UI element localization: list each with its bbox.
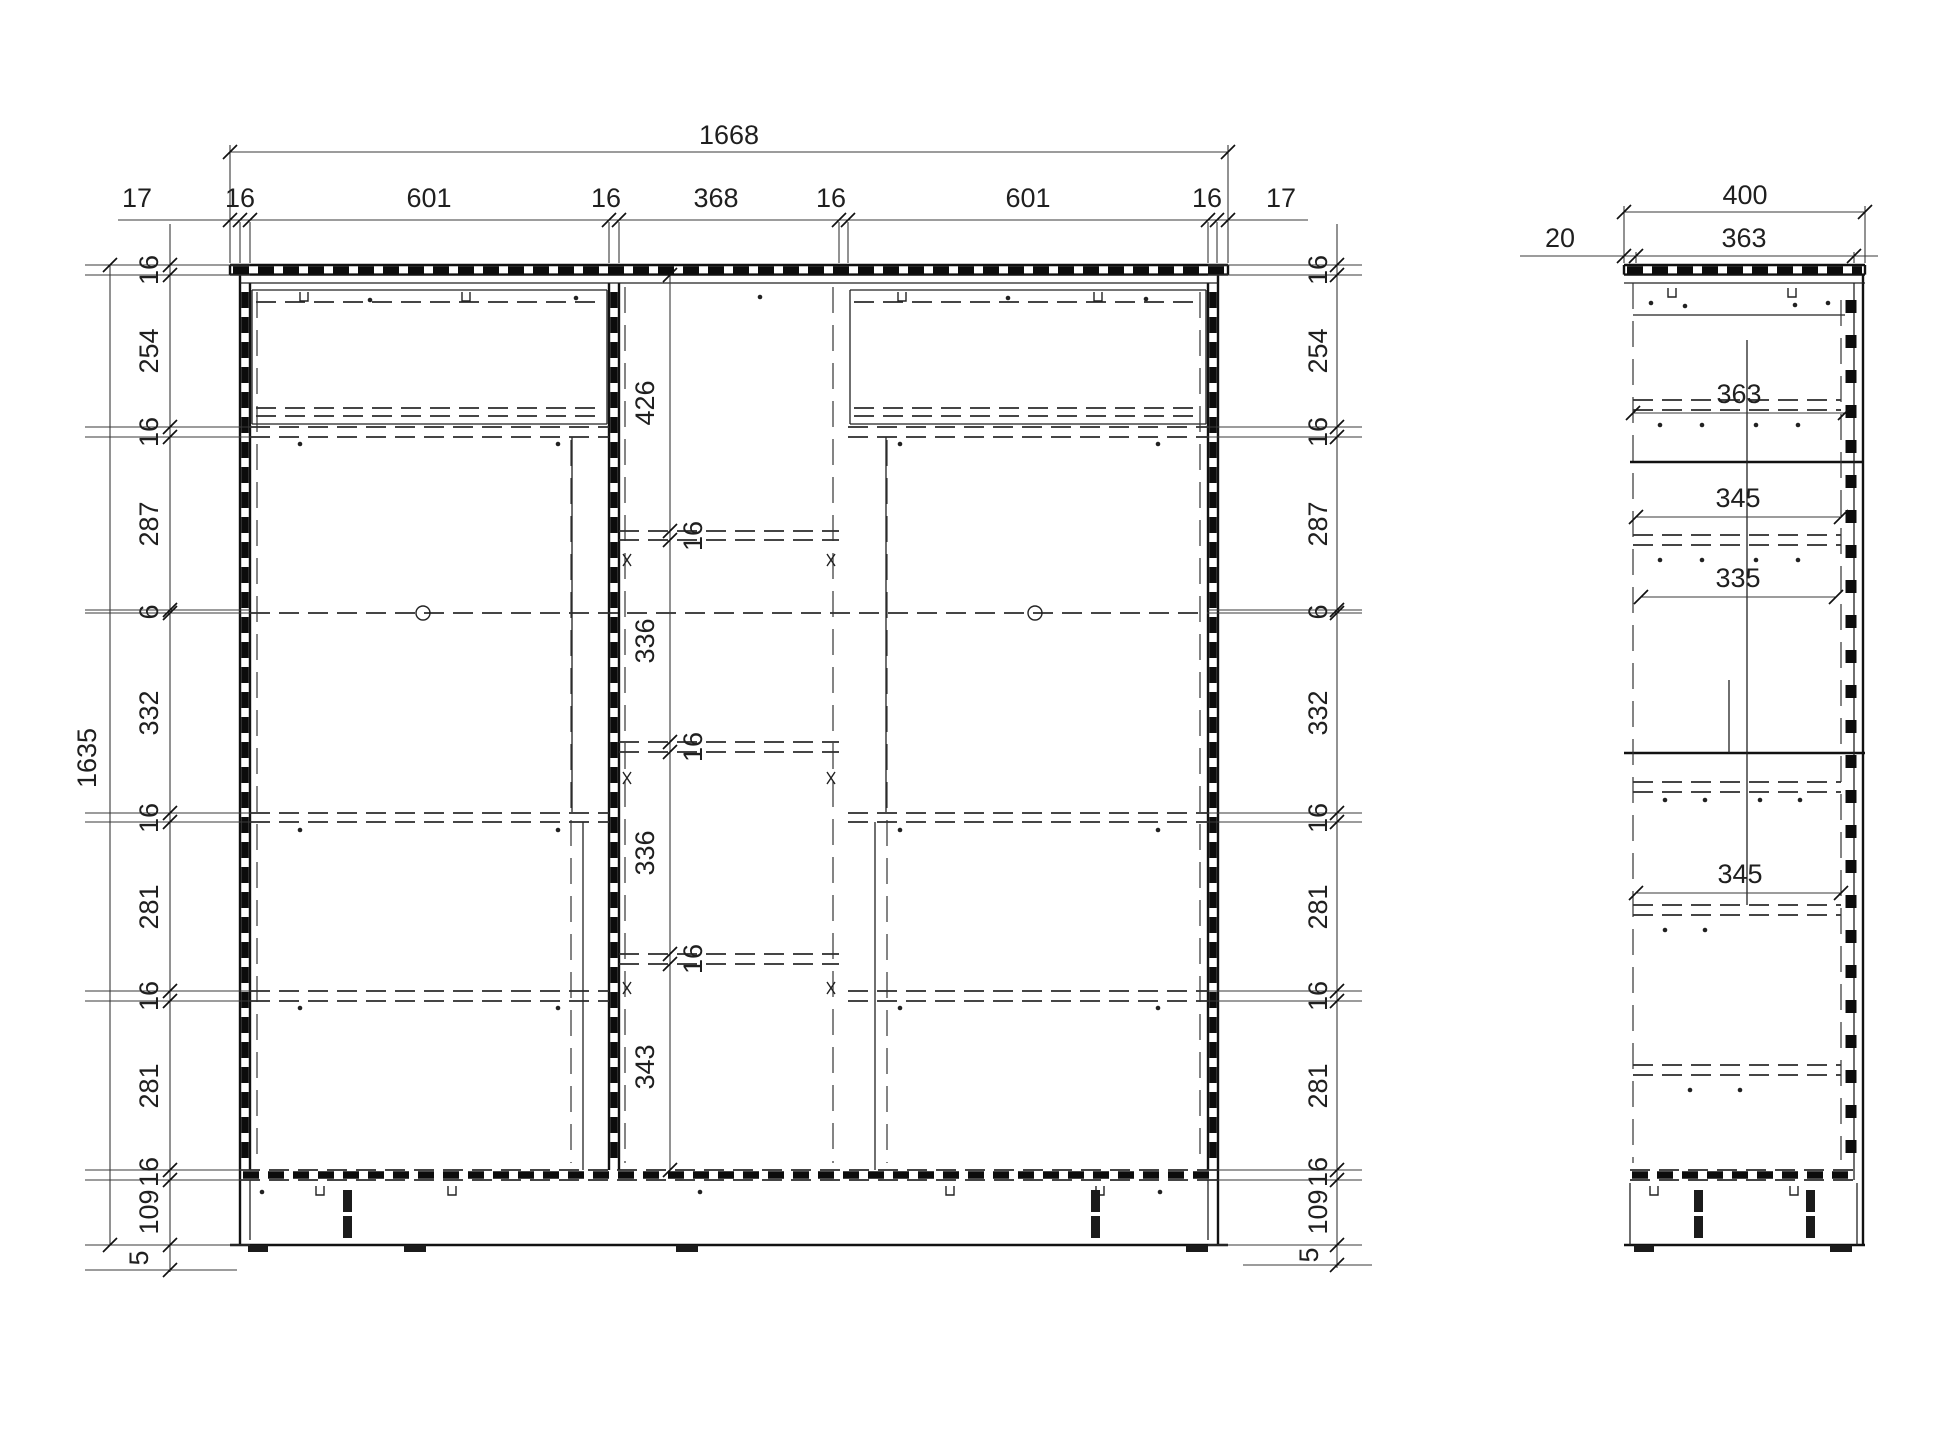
- dim-top-17-left: 17: [122, 183, 152, 213]
- dim-left-1: 254: [134, 328, 164, 373]
- dim-top-16-a: 16: [225, 183, 255, 213]
- dim-side-interior-1: 345: [1715, 483, 1760, 513]
- dim-left-7: 281: [134, 884, 164, 929]
- dim-front-overall-width: 1668: [699, 120, 759, 150]
- dim-left-3: 287: [134, 501, 164, 546]
- dim-side-interior-3: 345: [1717, 859, 1762, 889]
- dim-center-3: 16: [678, 732, 708, 762]
- dim-top-601-left: 601: [406, 183, 451, 213]
- dim-side-interior-2: 335: [1715, 563, 1760, 593]
- side-fitting-marks: [1634, 288, 1852, 1252]
- dim-side-interior-0: 363: [1716, 379, 1761, 409]
- dim-right-floor: 5: [1294, 1247, 1324, 1262]
- dim-right-7: 281: [1303, 884, 1333, 929]
- dim-top-368: 368: [693, 183, 738, 213]
- dim-right-6: 16: [1303, 803, 1333, 833]
- drawing-svg: 1668 17 16 601 16 368 16 601 16 17 1635 …: [0, 0, 1940, 1456]
- dim-left-11: 109: [134, 1189, 164, 1234]
- dim-right-3: 287: [1303, 501, 1333, 546]
- dim-left-0: 16: [134, 255, 164, 285]
- cabinet-technical-drawing: 1668 17 16 601 16 368 16 601 16 17 1635 …: [0, 0, 1940, 1456]
- dim-top-16-b: 16: [591, 183, 621, 213]
- dim-left-floor: 5: [124, 1250, 154, 1265]
- dim-center-0: 426: [630, 380, 660, 425]
- dim-left-4: 6: [134, 604, 164, 619]
- dim-top-601-right: 601: [1005, 183, 1050, 213]
- front-dimensions: 1668 17 16 601 16 368 16 601 16 17 1635 …: [72, 120, 1372, 1277]
- dim-right-2: 16: [1303, 417, 1333, 447]
- dim-right-1: 254: [1303, 328, 1333, 373]
- fitting-marks: [260, 292, 1163, 1238]
- dim-center-1: 16: [678, 521, 708, 551]
- dim-side-back-offset: 20: [1545, 223, 1575, 253]
- dim-top-16-d: 16: [1192, 183, 1222, 213]
- dim-right-4: 6: [1303, 604, 1333, 619]
- dim-center-2: 336: [630, 618, 660, 663]
- dim-front-overall-height: 1635: [72, 728, 102, 788]
- dim-top-16-c: 16: [816, 183, 846, 213]
- dim-center-4: 336: [630, 830, 660, 875]
- dim-right-10: 16: [1303, 1157, 1333, 1187]
- dim-right-5: 332: [1303, 690, 1333, 735]
- dim-top-17-right: 17: [1266, 183, 1296, 213]
- dim-right-9: 281: [1303, 1063, 1333, 1108]
- dim-right-8: 16: [1303, 981, 1333, 1011]
- dim-left-9: 281: [134, 1063, 164, 1108]
- dim-left-10: 16: [134, 1157, 164, 1187]
- dim-left-6: 16: [134, 803, 164, 833]
- dim-side-overall-depth: 400: [1722, 180, 1767, 210]
- dim-side-top-depth: 363: [1721, 223, 1766, 253]
- dim-center-6: 343: [630, 1044, 660, 1089]
- side-view: 400 20 363 363 345 335 345: [1520, 180, 1878, 1252]
- front-structure: [230, 265, 1228, 1252]
- front-view: 1668 17 16 601 16 368 16 601 16 17 1635 …: [72, 120, 1372, 1277]
- dim-right-11: 109: [1303, 1189, 1333, 1234]
- dim-left-8: 16: [134, 981, 164, 1011]
- dim-right-0: 16: [1303, 255, 1333, 285]
- dim-center-5: 16: [678, 944, 708, 974]
- dim-left-2: 16: [134, 417, 164, 447]
- dim-left-5: 332: [134, 690, 164, 735]
